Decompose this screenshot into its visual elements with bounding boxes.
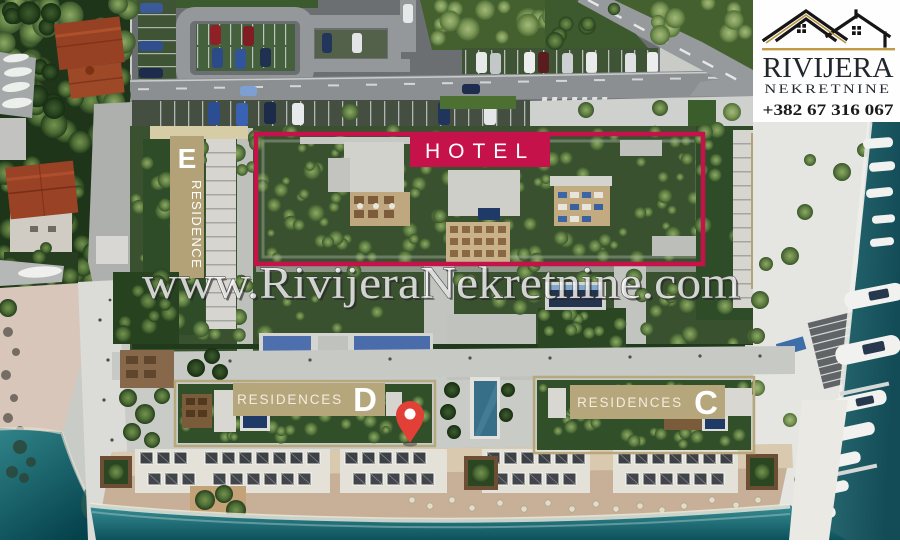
svg-text:+382 67 316 067: +382 67 316 067 bbox=[763, 102, 894, 119]
svg-text:E: E bbox=[178, 143, 197, 174]
svg-text:D: D bbox=[353, 381, 377, 418]
svg-text:www.RivijeraNekretnine.com: www.RivijeraNekretnine.com bbox=[142, 258, 740, 308]
svg-text:NEKRETNINE: NEKRETNINE bbox=[765, 81, 892, 96]
svg-text:RESIDENCE: RESIDENCE bbox=[189, 180, 204, 269]
svg-text:RESIDENCES: RESIDENCES bbox=[577, 395, 683, 410]
svg-text:HOTEL: HOTEL bbox=[425, 140, 535, 163]
svg-text:RIVIJERA: RIVIJERA bbox=[763, 53, 895, 84]
svg-text:C: C bbox=[694, 384, 718, 421]
svg-text:RESIDENCES: RESIDENCES bbox=[237, 392, 343, 407]
